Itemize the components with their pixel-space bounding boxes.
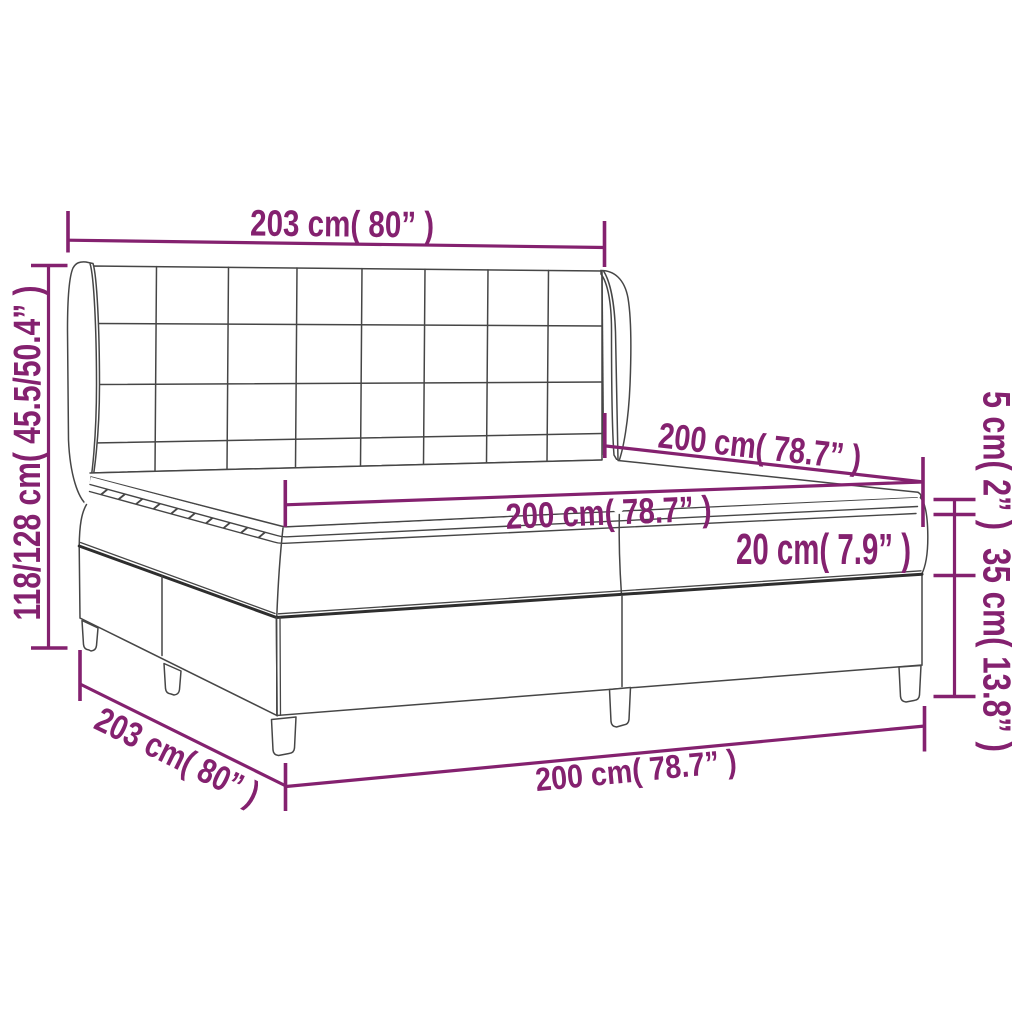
svg-text:200 cm( 78.7” ): 200 cm( 78.7” ) bbox=[505, 488, 712, 537]
svg-text:118/128 cm( 45.5/50.4” ): 118/128 cm( 45.5/50.4” ) bbox=[7, 286, 49, 621]
svg-text:35 cm( 13.8” ): 35 cm( 13.8” ) bbox=[975, 548, 1018, 752]
svg-text:203 cm( 80” ): 203 cm( 80” ) bbox=[250, 203, 434, 246]
svg-text:20 cm( 7.9” ): 20 cm( 7.9” ) bbox=[736, 525, 911, 574]
svg-text:5 cm( 2” ): 5 cm( 2” ) bbox=[975, 391, 1018, 530]
